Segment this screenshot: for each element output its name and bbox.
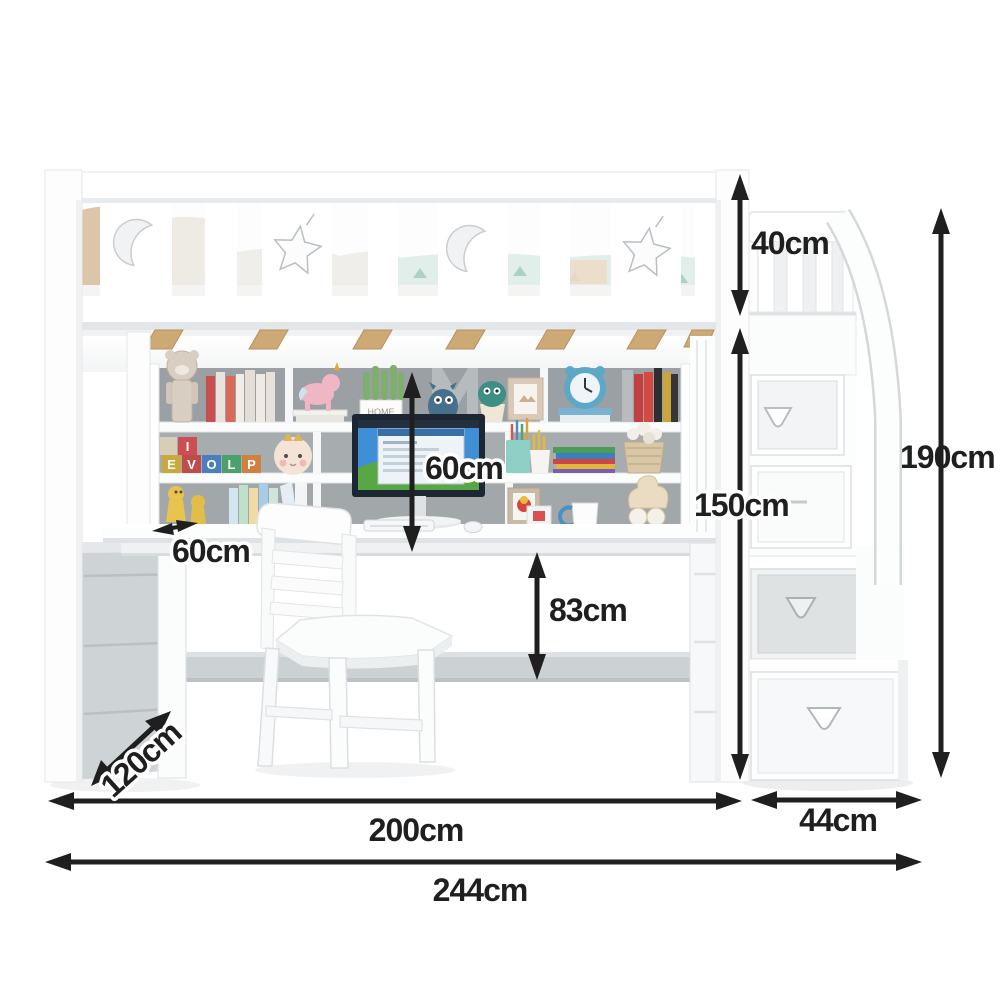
svg-text:40cm: 40cm bbox=[751, 225, 829, 261]
svg-text:60cm: 60cm bbox=[425, 450, 503, 486]
svg-text:I: I bbox=[186, 439, 190, 454]
svg-text:L: L bbox=[228, 457, 236, 472]
svg-text:60cm: 60cm bbox=[172, 533, 250, 569]
svg-text:V: V bbox=[187, 457, 196, 472]
svg-text:O: O bbox=[206, 457, 216, 472]
svg-text:E: E bbox=[167, 457, 176, 472]
svg-text:P: P bbox=[247, 457, 256, 472]
svg-text:190cm: 190cm bbox=[900, 439, 995, 475]
svg-text:244cm: 244cm bbox=[433, 872, 528, 908]
svg-text:83cm: 83cm bbox=[549, 592, 627, 628]
svg-text:150cm: 150cm bbox=[694, 487, 789, 523]
svg-text:200cm: 200cm bbox=[369, 812, 464, 848]
svg-text:44cm: 44cm bbox=[799, 802, 877, 838]
